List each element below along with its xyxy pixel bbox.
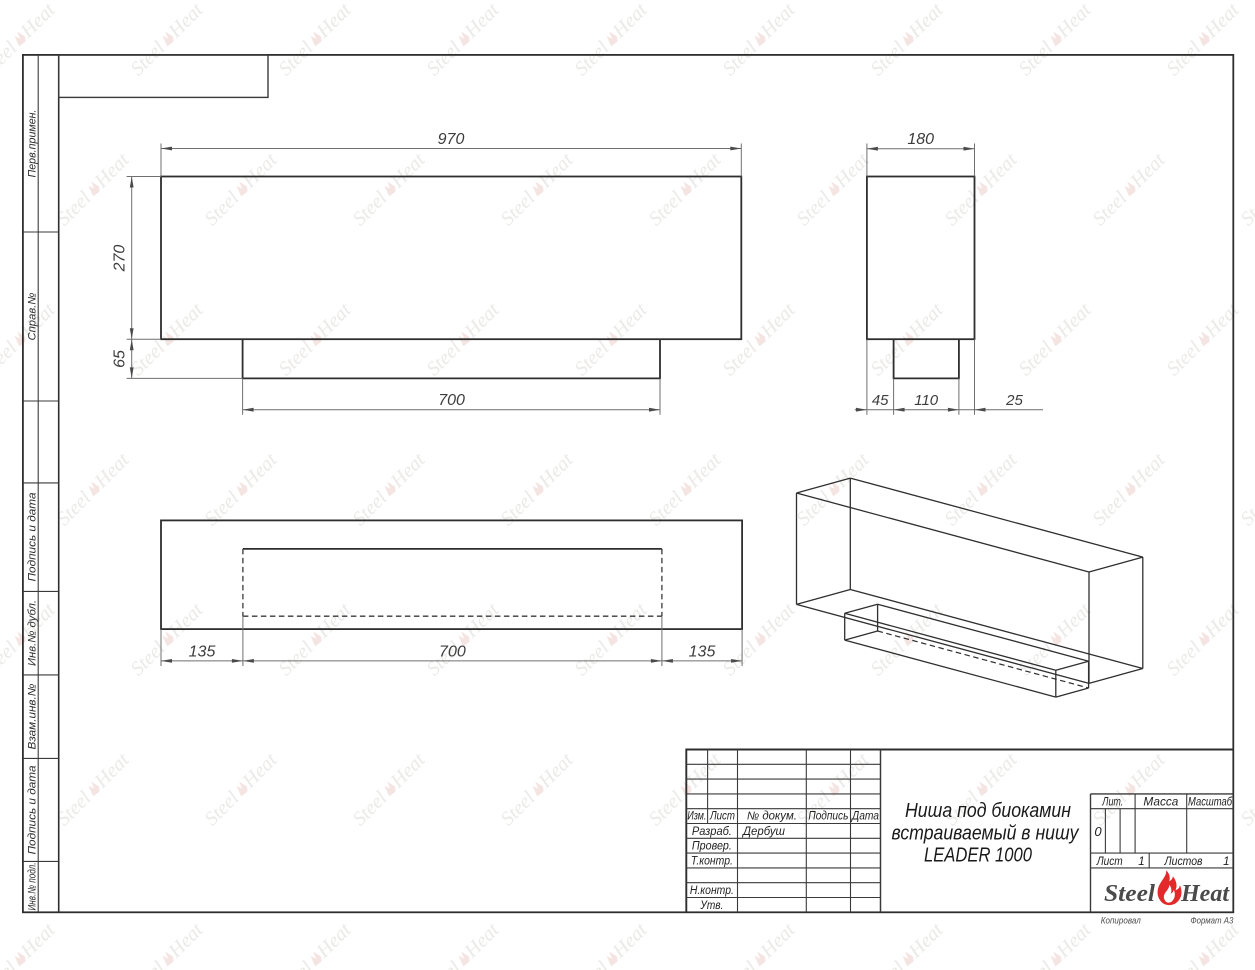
svg-text:700: 700 <box>439 644 466 661</box>
svg-text:LEADER 1000: LEADER 1000 <box>924 845 1032 867</box>
svg-text:45: 45 <box>872 392 889 409</box>
svg-text:Разраб.: Разраб. <box>692 826 732 838</box>
svg-text:Подпись и дата: Подпись и дата <box>27 766 39 855</box>
svg-text:Копировал: Копировал <box>1101 916 1142 927</box>
svg-text:970: 970 <box>438 131 465 148</box>
svg-text:Лист: Лист <box>1096 856 1123 868</box>
svg-text:Перв.примен.: Перв.примен. <box>27 110 39 178</box>
svg-text:700: 700 <box>438 392 465 409</box>
svg-text:25: 25 <box>1005 392 1023 409</box>
svg-text:Справ.№: Справ.№ <box>27 292 39 340</box>
svg-text:Подпись и дата: Подпись и дата <box>27 493 39 582</box>
svg-text:180: 180 <box>907 131 934 148</box>
svg-text:Взам.инв.№: Взам.инв.№ <box>27 683 39 749</box>
svg-text:Дербуш: Дербуш <box>741 826 785 838</box>
svg-text:65: 65 <box>112 350 129 368</box>
svg-text:1: 1 <box>1223 856 1229 868</box>
svg-text:Н.контр.: Н.контр. <box>690 885 734 897</box>
svg-text:135: 135 <box>689 644 716 661</box>
svg-text:Подпись: Подпись <box>808 811 848 823</box>
svg-text:Ниша под биокамин: Ниша под биокамин <box>905 800 1071 822</box>
svg-text:встраиваемый в нишу: встраиваемый в нишу <box>892 823 1080 845</box>
svg-text:Утв.: Утв. <box>700 900 724 912</box>
svg-text:Масса: Масса <box>1143 797 1178 809</box>
svg-text:Формат А3: Формат А3 <box>1190 916 1234 927</box>
svg-text:Т.контр.: Т.контр. <box>691 855 733 867</box>
svg-text:Изм.: Изм. <box>687 811 706 823</box>
svg-text:Лист: Лист <box>709 811 735 823</box>
svg-text:0: 0 <box>1094 824 1102 839</box>
svg-text:1: 1 <box>1138 856 1144 868</box>
svg-text:Провер.: Провер. <box>692 841 732 853</box>
svg-text:Steel: Steel <box>1104 881 1155 907</box>
svg-text:Инв.№ подл.: Инв.№ подл. <box>27 863 39 911</box>
svg-text:Инв.№ дубл.: Инв.№ дубл. <box>27 600 39 666</box>
svg-text:№ докум.: № докум. <box>747 811 797 823</box>
svg-text:Масштаб: Масштаб <box>1188 797 1232 809</box>
svg-text:110: 110 <box>914 392 939 409</box>
svg-text:135: 135 <box>189 644 216 661</box>
svg-text:Лит.: Лит. <box>1102 797 1124 809</box>
svg-text:Heat: Heat <box>1180 881 1230 907</box>
svg-text:Дата: Дата <box>850 811 879 823</box>
svg-text:270: 270 <box>112 245 129 273</box>
svg-text:Листов: Листов <box>1164 856 1203 868</box>
